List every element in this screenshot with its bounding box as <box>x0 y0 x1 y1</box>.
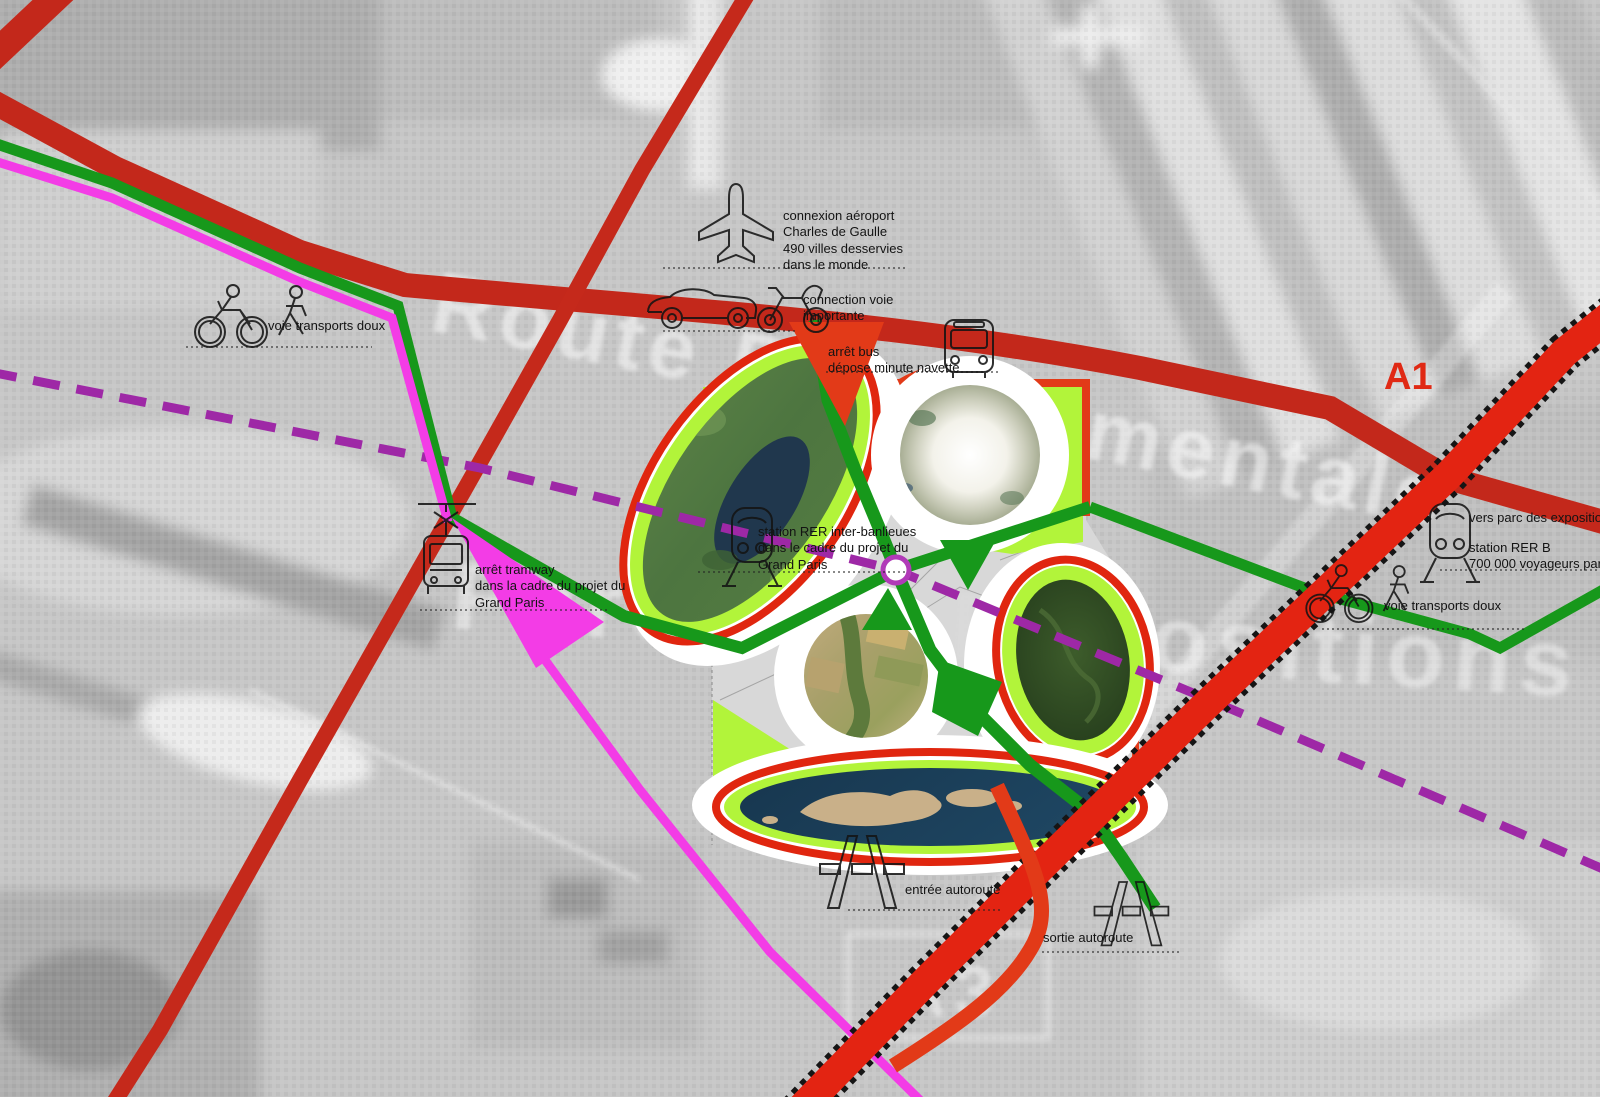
masterplan-diagram: Route Départementale Parc des Exposition… <box>0 0 1600 1111</box>
annotation-airport: connexion aéroport Charles de Gaulle 490… <box>783 208 953 273</box>
annotation-road-connection: connection voie importante <box>803 292 943 325</box>
annotation-rer-station: station RER inter-banlieues dans le cadr… <box>758 524 958 573</box>
a1-motorway-label: A1 <box>1384 356 1433 399</box>
annotation-bus-stop: arrêt bus dépose minute navette <box>828 344 1018 377</box>
annotation-soft-transport-left: voie transports doux <box>268 318 428 334</box>
annotation-soft-transport-right: voie transports doux <box>1384 598 1544 614</box>
annotation-rer-b: station RER B 700 000 voyageurs par jour <box>1469 540 1600 573</box>
bottom-margin <box>0 1097 1600 1111</box>
annotation-tram-stop: arrêt tramway dans la cadre du projet du… <box>475 562 655 611</box>
annotation-to-expo-park: vers parc des expositions <box>1469 510 1600 526</box>
annotation-motorway-entrance: entrée autoroute <box>905 882 1045 898</box>
annotation-motorway-exit: sortie autoroute <box>1043 930 1183 946</box>
